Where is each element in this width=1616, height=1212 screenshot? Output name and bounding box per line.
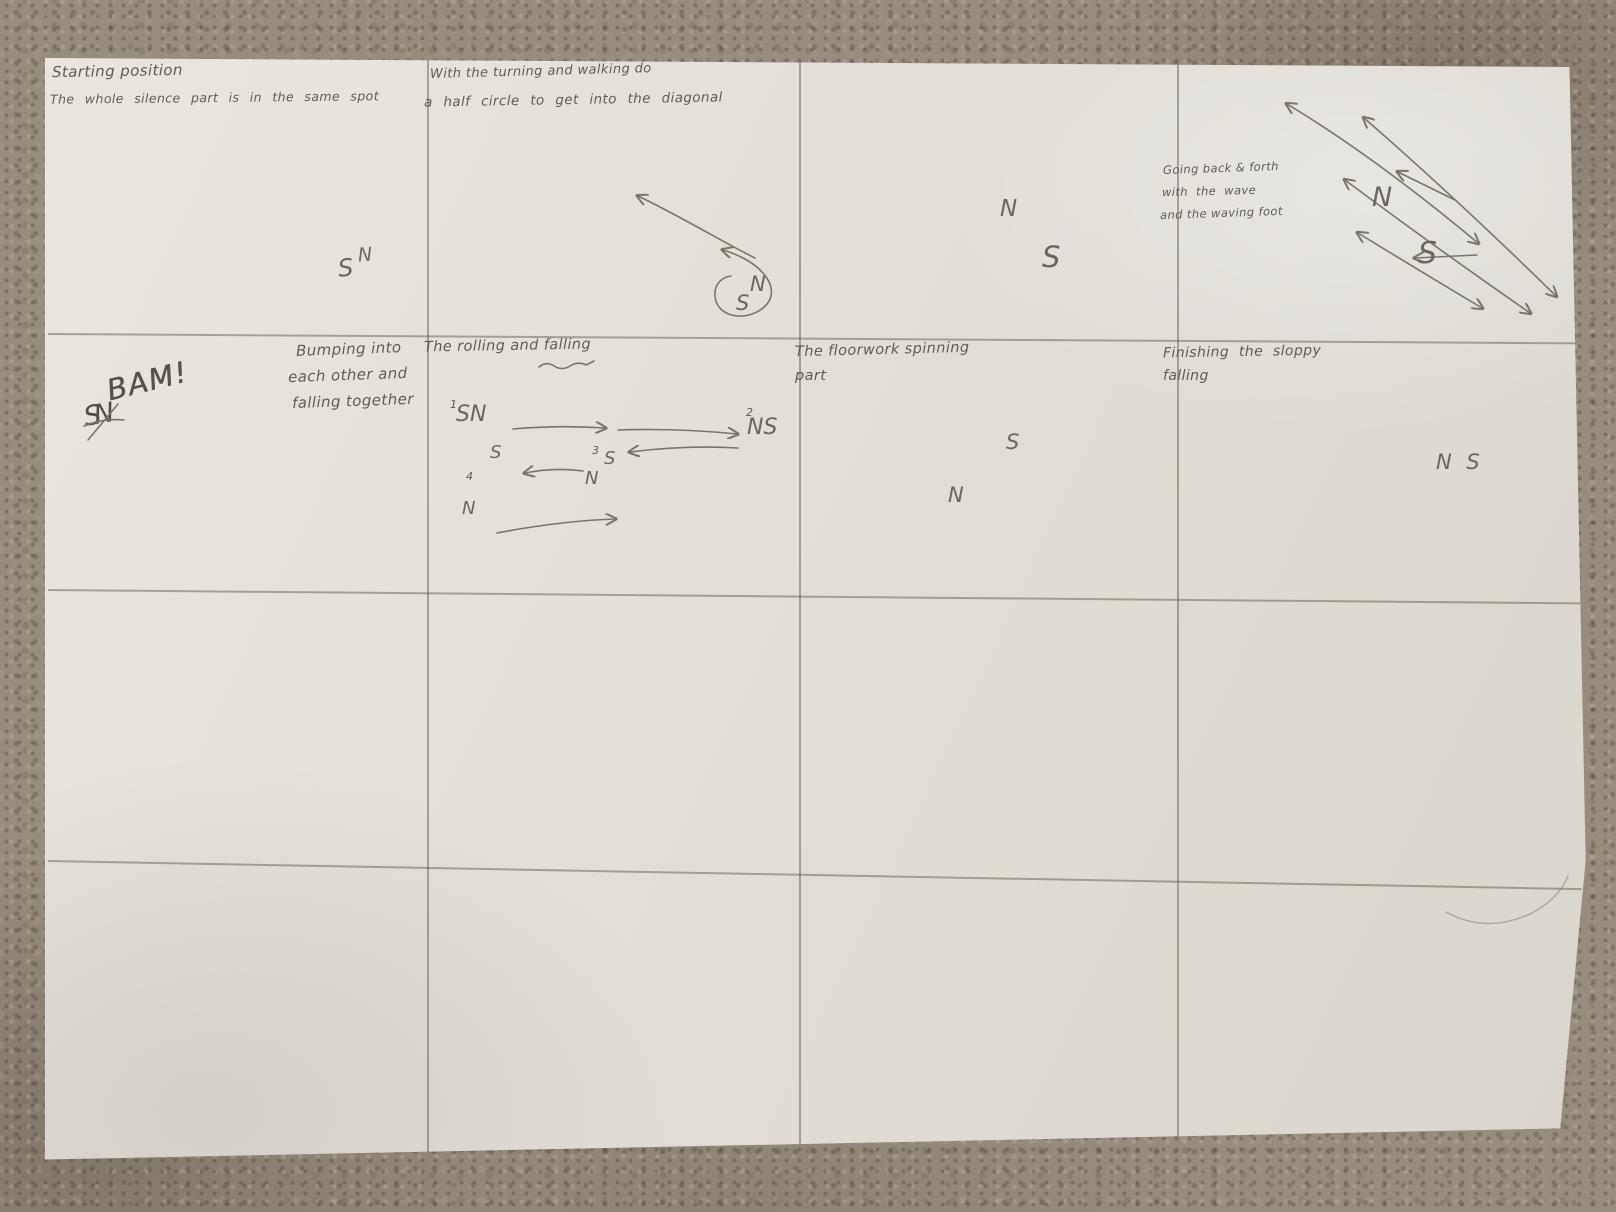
faint-squiggle (1438, 872, 1588, 936)
direction-letter-n: N (750, 272, 766, 296)
half-circle-arrow (612, 176, 802, 326)
direction-letter-n: N (1372, 182, 1392, 213)
note-line: The whole silence part is in the same sp… (50, 88, 379, 106)
note-line: each other and (288, 364, 408, 386)
direction-letter-s: S (1006, 430, 1019, 454)
note-line: Going back & forth (1163, 159, 1279, 177)
direction-letter-s: S (337, 253, 355, 282)
note-line: falling together (292, 390, 414, 412)
annotations-layer: Starting position The whole silence part… (0, 0, 1616, 1212)
squiggle-underline (536, 358, 598, 372)
direction-letter-n: N (1000, 196, 1017, 222)
note-line: The floorwork spinning (795, 340, 970, 361)
photo-of-paper: { "colors": { "paper": "#e2dfd8", "carpe… (0, 0, 1616, 1212)
diagonal-double-arrows (1275, 85, 1590, 325)
direction-letter-s: S (736, 291, 749, 315)
bam-text: BAM! (103, 355, 191, 408)
note-line: With the turning and walking do (430, 61, 652, 82)
note-line: a half circle to get into the diagonal (424, 89, 723, 110)
direction-letter-s: S (1042, 240, 1060, 274)
note-line: with the wave (1162, 183, 1256, 199)
direction-letter-n: N (357, 244, 373, 267)
note-line: part (795, 368, 826, 384)
direction-pair-ns: N S (1436, 450, 1480, 474)
note-line: falling (1163, 368, 1209, 384)
note-line: Starting position (52, 61, 183, 81)
direction-letter-s: S (1418, 236, 1437, 271)
direction-letter-n: N (948, 483, 964, 507)
section-title: The rolling and falling (424, 337, 591, 356)
note-line: Finishing the sloppy (1163, 343, 1321, 362)
rolling-sequence-arrows (445, 395, 765, 545)
note-line: Bumping into (296, 338, 402, 360)
note-line: and the waving foot (1160, 204, 1283, 222)
